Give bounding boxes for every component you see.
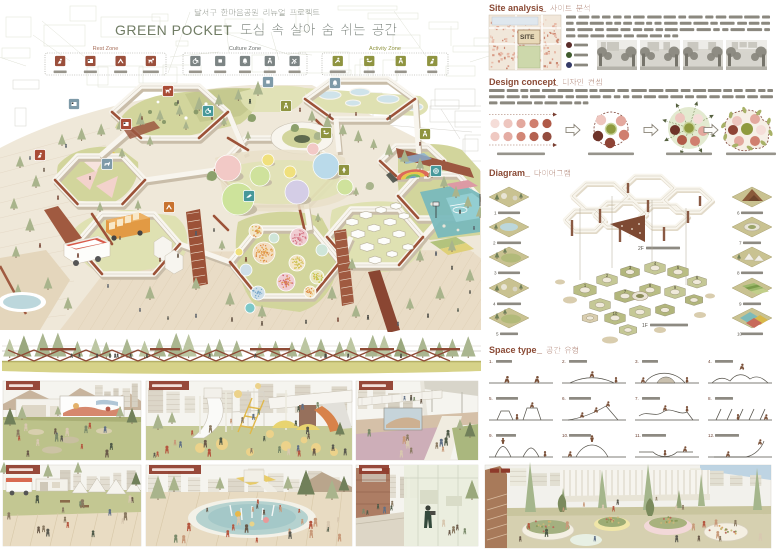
svg-text:12.: 12. [708, 433, 714, 438]
svg-text:8: 8 [737, 271, 740, 276]
svg-text:4: 4 [493, 302, 496, 307]
svg-text:6: 6 [737, 211, 740, 216]
svg-text:5.: 5. [489, 396, 493, 401]
svg-text:3.: 3. [635, 359, 639, 364]
svg-text:Diagram: Diagram [489, 168, 525, 178]
svg-text:_: _ [552, 77, 559, 87]
svg-text:8.: 8. [708, 396, 712, 401]
svg-text:GREEN POCKET: GREEN POCKET [115, 22, 232, 38]
svg-text:7: 7 [739, 241, 742, 246]
svg-text:9: 9 [739, 302, 742, 307]
svg-text:3: 3 [494, 271, 497, 276]
svg-text:Site analysis: Site analysis [489, 3, 544, 13]
svg-text:4.: 4. [708, 359, 712, 364]
svg-text:1.: 1. [489, 359, 493, 364]
svg-text:10: 10 [613, 311, 618, 316]
svg-text:_: _ [536, 345, 543, 355]
svg-text:10.: 10. [562, 433, 568, 438]
svg-text:Activity Zone: Activity Zone [369, 46, 401, 52]
svg-text:1F: 1F [642, 323, 648, 329]
svg-text:1: 1 [494, 211, 497, 216]
svg-text:2.: 2. [562, 359, 566, 364]
svg-text:5: 5 [496, 332, 499, 337]
svg-text:_: _ [524, 168, 531, 178]
svg-text:_: _ [540, 3, 547, 13]
svg-text:2: 2 [493, 241, 496, 246]
svg-text:11.: 11. [635, 433, 641, 438]
svg-text:6.: 6. [562, 396, 566, 401]
svg-text:2F: 2F [638, 246, 644, 252]
svg-text:7.: 7. [635, 396, 639, 401]
svg-text:Design concept: Design concept [489, 77, 556, 87]
svg-text:SITE: SITE [520, 34, 535, 41]
svg-text:Rest Zone: Rest Zone [93, 46, 119, 52]
svg-text:Culture Zone: Culture Zone [229, 46, 261, 52]
svg-text:Space type: Space type [489, 345, 537, 355]
svg-text:9.: 9. [489, 433, 493, 438]
